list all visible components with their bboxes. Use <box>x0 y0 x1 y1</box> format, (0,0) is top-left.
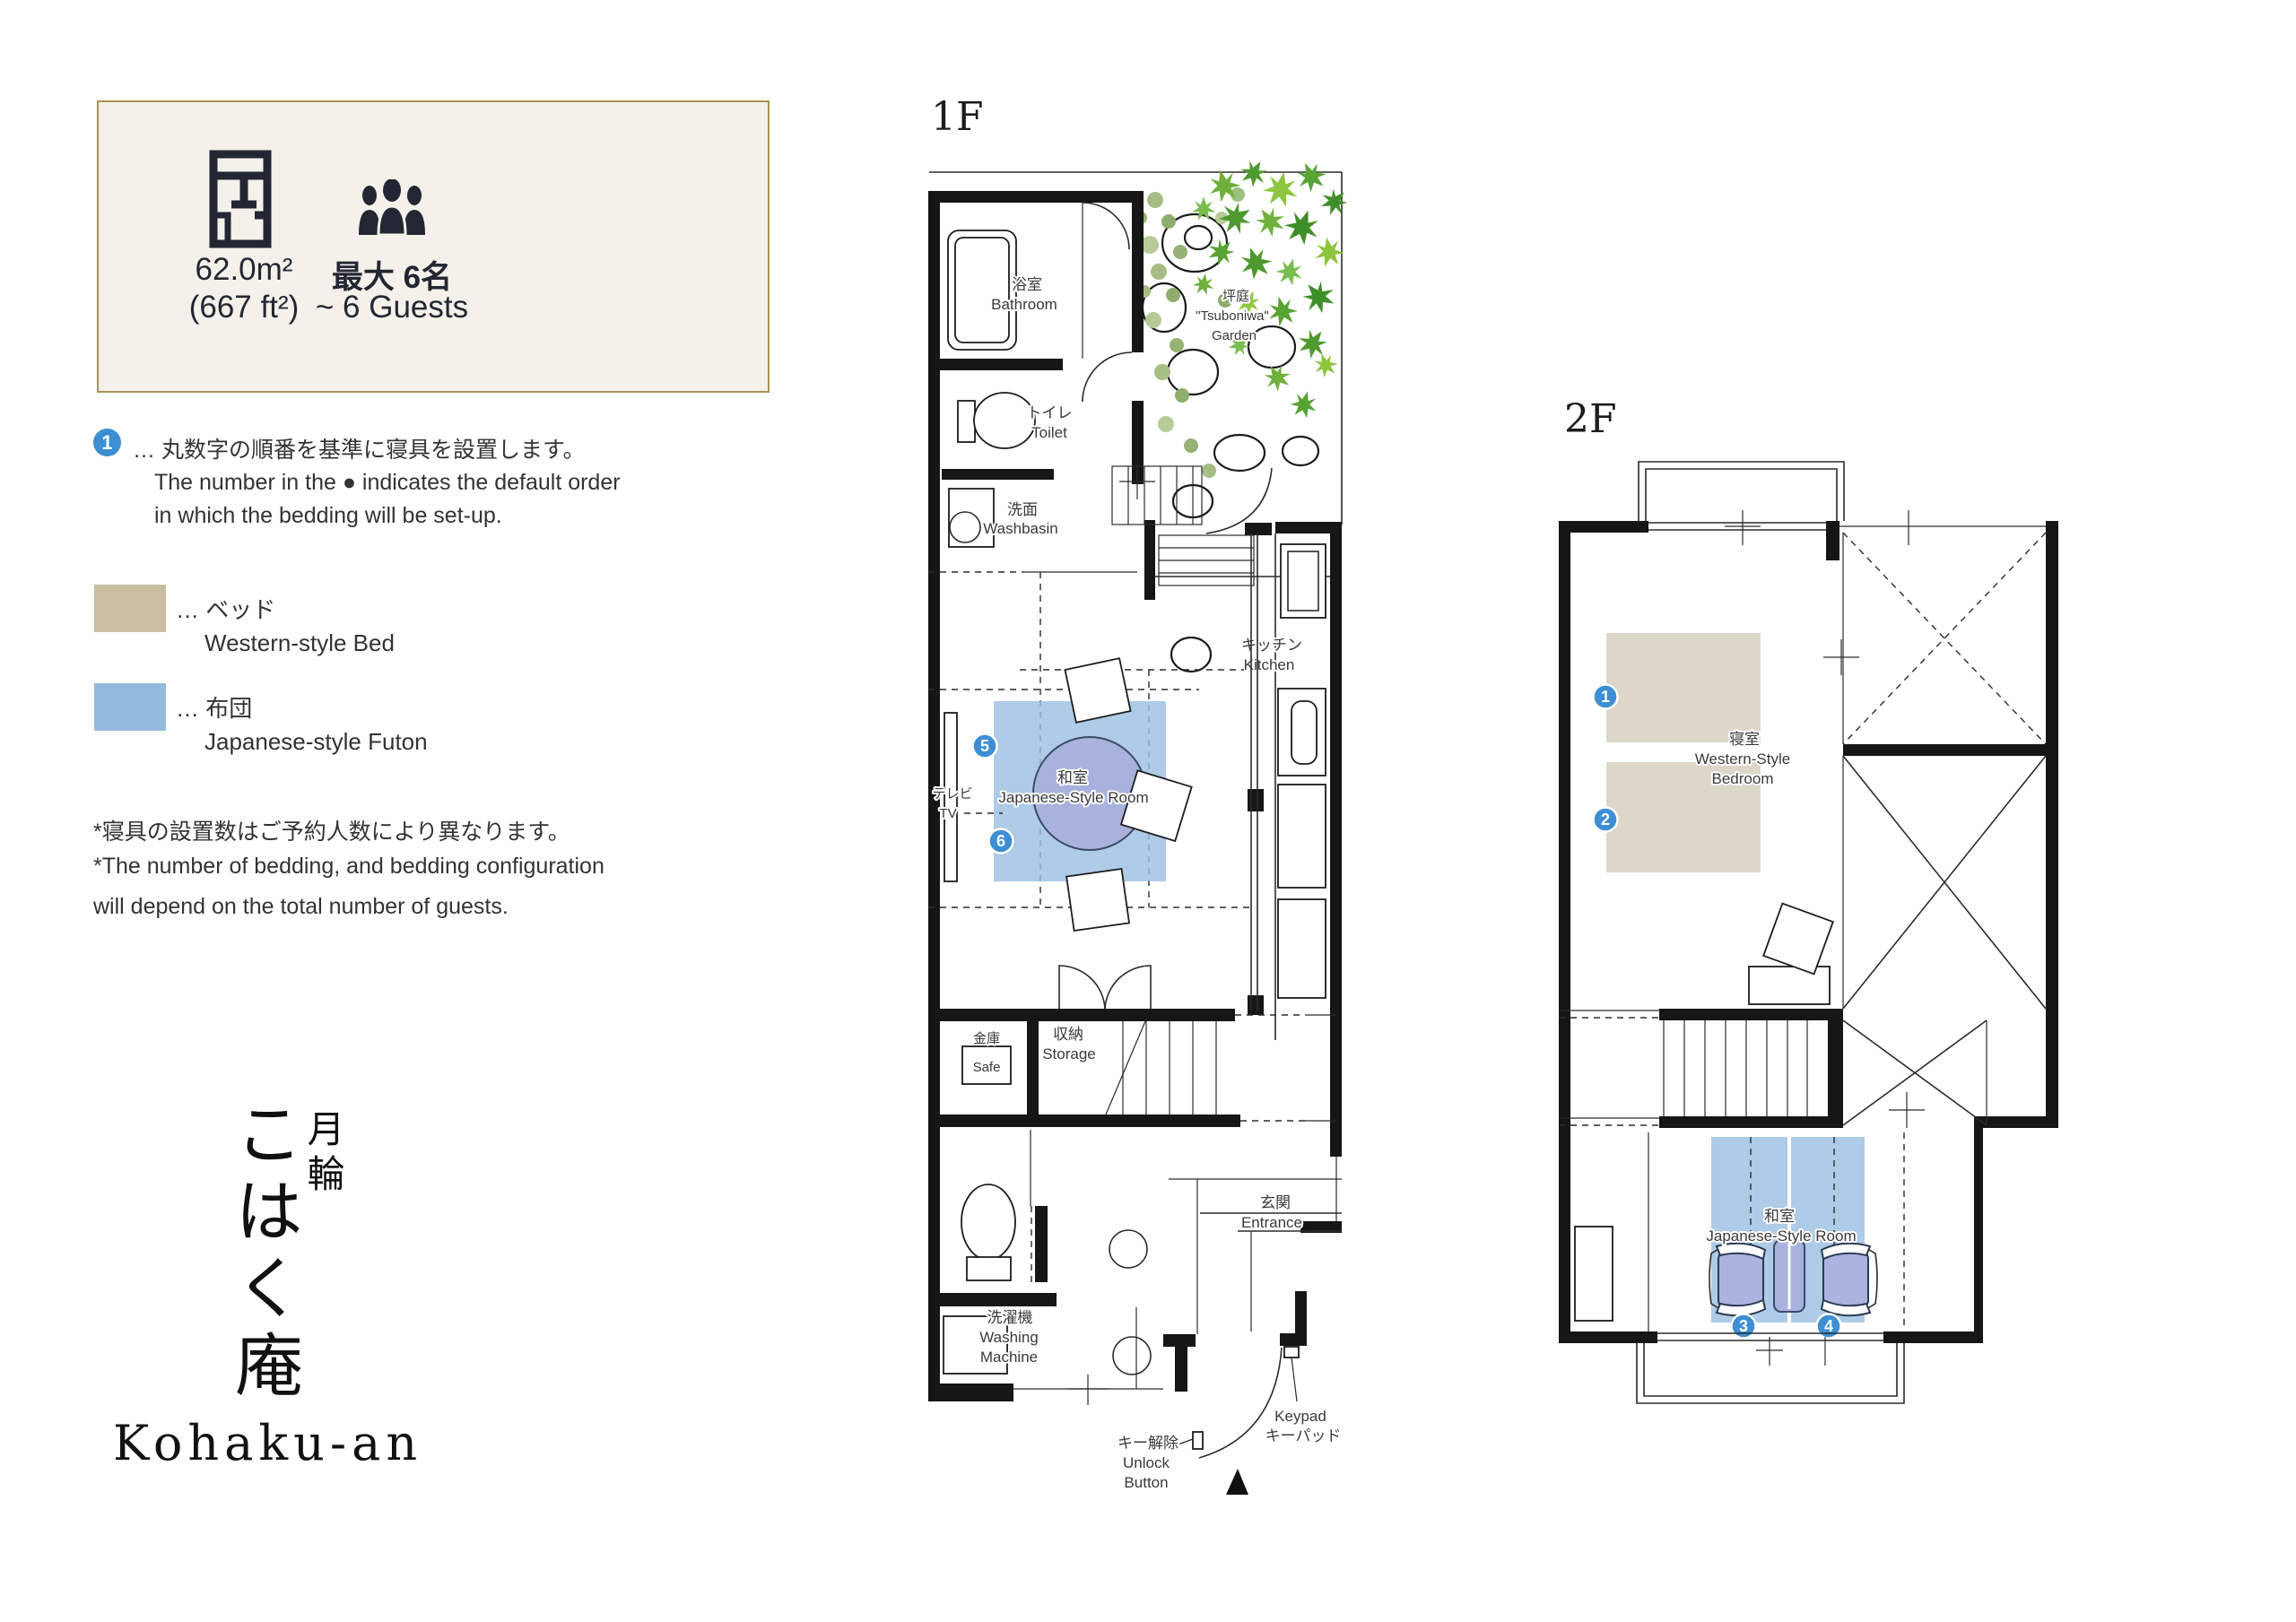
legend-bed-en: Western-style Bed <box>204 629 395 657</box>
void-areas <box>1823 533 2046 1128</box>
bedding-note-en2: in which the bedding will be set-up. <box>154 503 502 529</box>
storage-label-en: Storage <box>1042 1045 1096 1063</box>
bedding-number-2: 2 <box>1594 808 1618 832</box>
washbasin-label-jp: 洗面 <box>1007 501 1038 518</box>
unlock-label-jp: キー解除 <box>1118 1435 1178 1452</box>
desk <box>1749 967 1830 1004</box>
safe-label-jp: 金庫 <box>973 1031 1000 1046</box>
bedding-number-3: 3 <box>1732 1314 1756 1339</box>
legend-futon-swatch <box>94 683 166 731</box>
toilet-label-en: Toilet <box>1031 424 1067 441</box>
legend-bed-swatch <box>94 585 166 632</box>
title-romaji: Kohaku-an <box>113 1415 422 1471</box>
floor1-plan: 1F <box>924 76 1354 1511</box>
balcony-top <box>1639 462 1844 521</box>
toilet-room-2 <box>961 1130 1031 1282</box>
bedroom-label-en1: Western-Style <box>1695 750 1790 768</box>
title-kana: こはく庵 <box>213 1098 312 1407</box>
info-panel: 62.0m² (667 ft²) 最大 6名 ~ 6 Guests <box>97 100 770 393</box>
balcony-bottom <box>1637 1343 1904 1403</box>
bedding-number-6: 6 <box>989 829 1013 854</box>
storage-label-jp: 収納 <box>1053 1026 1083 1043</box>
legend-futon-en: Japanese-style Futon <box>204 728 428 756</box>
svg-text:5: 5 <box>980 737 989 755</box>
keypad-label-jp: キーパッド <box>1265 1427 1342 1444</box>
bedroom-label-jp: 寝室 <box>1729 730 1760 748</box>
floor1-label: 1F <box>931 94 984 140</box>
svg-text:3: 3 <box>1739 1317 1748 1335</box>
svg-text:6: 6 <box>996 832 1005 850</box>
unlock-label-en2: Button <box>1124 1474 1168 1491</box>
stairs-lower <box>1106 1015 1336 1121</box>
svg-text:1: 1 <box>1601 688 1610 706</box>
japanese-room-2f: 和室 Japanese-Style Room 3 4 <box>1575 1132 1904 1339</box>
western-bedroom: 1 2 寝室 Western-Style Bedroom <box>1594 633 1833 1004</box>
toilet-room: トイレ Toilet <box>958 393 1073 448</box>
safe-room: 金庫 Safe <box>962 1031 1011 1084</box>
svg-text:4: 4 <box>1824 1317 1833 1335</box>
capacity-en: ~ 6 Guests <box>293 290 491 325</box>
bedding-number-4: 4 <box>1817 1314 1841 1339</box>
kitchen: キッチン Kitchen <box>1241 533 1326 1040</box>
keypad-label-en: Keypad <box>1274 1408 1326 1425</box>
bathroom-label-en: Bathroom <box>991 296 1057 313</box>
safe-label-en: Safe <box>973 1060 1001 1075</box>
japanese-room-1f: テレビ TV 和室 Japanese-Style Room 5 6 <box>928 572 1253 931</box>
bed-1 <box>1606 633 1761 742</box>
corridor-wall <box>1251 533 1257 1011</box>
washer-label-en1: Washing <box>979 1329 1039 1346</box>
tatami-label-en-1f: Japanese-Style Room <box>998 789 1148 806</box>
bathroom: 浴室 Bathroom <box>948 203 1132 402</box>
bathroom-label-jp: 浴室 <box>1012 276 1042 293</box>
floor2-plan: 2F <box>1559 384 2083 1428</box>
tv-label-jp: テレビ <box>932 786 972 802</box>
garden-label-en1: "Tsuboniwa" <box>1196 308 1269 324</box>
bedding-note-jp: … 丸数字の順番を基準に寝具を設置します。 <box>133 432 585 464</box>
bedroom-label-en2: Bedroom <box>1712 770 1774 787</box>
tv-label-en: TV <box>939 806 956 821</box>
floorplan-page: 62.0m² (667 ft²) 最大 6名 ~ 6 Guests 1 … 丸数… <box>0 0 2296 1622</box>
garden-label-jp: 坪庭 <box>1222 289 1249 304</box>
footnote-en2: will depend on the total number of guest… <box>93 894 509 920</box>
unlock-label-en1: Unlock <box>1123 1454 1170 1471</box>
kitchen-label-jp: キッチン <box>1241 637 1302 654</box>
desk-chair <box>1763 904 1833 975</box>
washer-label-en2: Machine <box>980 1349 1038 1366</box>
washbasin-area: 洗面 Washbasin <box>949 489 1058 547</box>
keypad: Keypad キーパッド <box>1265 1347 1342 1444</box>
legend-futon-jp: … 布団 <box>176 690 252 724</box>
washer-label-jp: 洗濯機 <box>987 1309 1033 1326</box>
legend-bed-jp: … ベッド <box>176 592 275 625</box>
guests-icon <box>357 179 427 235</box>
bedding-number-5: 5 <box>973 734 997 759</box>
floor2-label: 2F <box>1564 396 1617 442</box>
number-badge-example: 1 <box>93 429 121 456</box>
stairs-2f <box>1559 1010 1807 1125</box>
window-bottom <box>1657 1333 1883 1366</box>
floorplan-icon <box>208 149 273 249</box>
tatami-label-en-2f: Japanese-Style Room <box>1706 1227 1856 1245</box>
washbasin-label-en: Washbasin <box>983 520 1057 537</box>
toilet-label-jp: トイレ <box>1027 404 1073 421</box>
footnote-jp: *寝具の設置数はご予約人数により異なります。 <box>93 814 570 846</box>
bedding-number-1: 1 <box>1594 685 1618 709</box>
unlock-button: キー解除 Unlock Button <box>1118 1432 1203 1491</box>
entrance-direction-marker <box>1226 1469 1248 1495</box>
side-shelf <box>1575 1227 1613 1321</box>
window-top <box>1648 510 2046 545</box>
armchair-right <box>1822 1244 1877 1315</box>
washing-machine-area: 洗濯機 Washing Machine <box>944 1309 1039 1374</box>
tatami-label-jp-2f: 和室 <box>1764 1208 1795 1225</box>
garden-label-en2: Garden <box>1212 328 1257 343</box>
tatami-label-jp-1f: 和室 <box>1057 769 1088 786</box>
footnote-en1: *The number of bedding, and bedding conf… <box>93 854 604 880</box>
entrance-label-en: Entrance <box>1241 1214 1302 1231</box>
bedding-note-en1: The number in the ● indicates the defaul… <box>154 470 621 496</box>
svg-text:2: 2 <box>1601 811 1610 828</box>
entrance-label-jp: 玄関 <box>1260 1194 1291 1211</box>
